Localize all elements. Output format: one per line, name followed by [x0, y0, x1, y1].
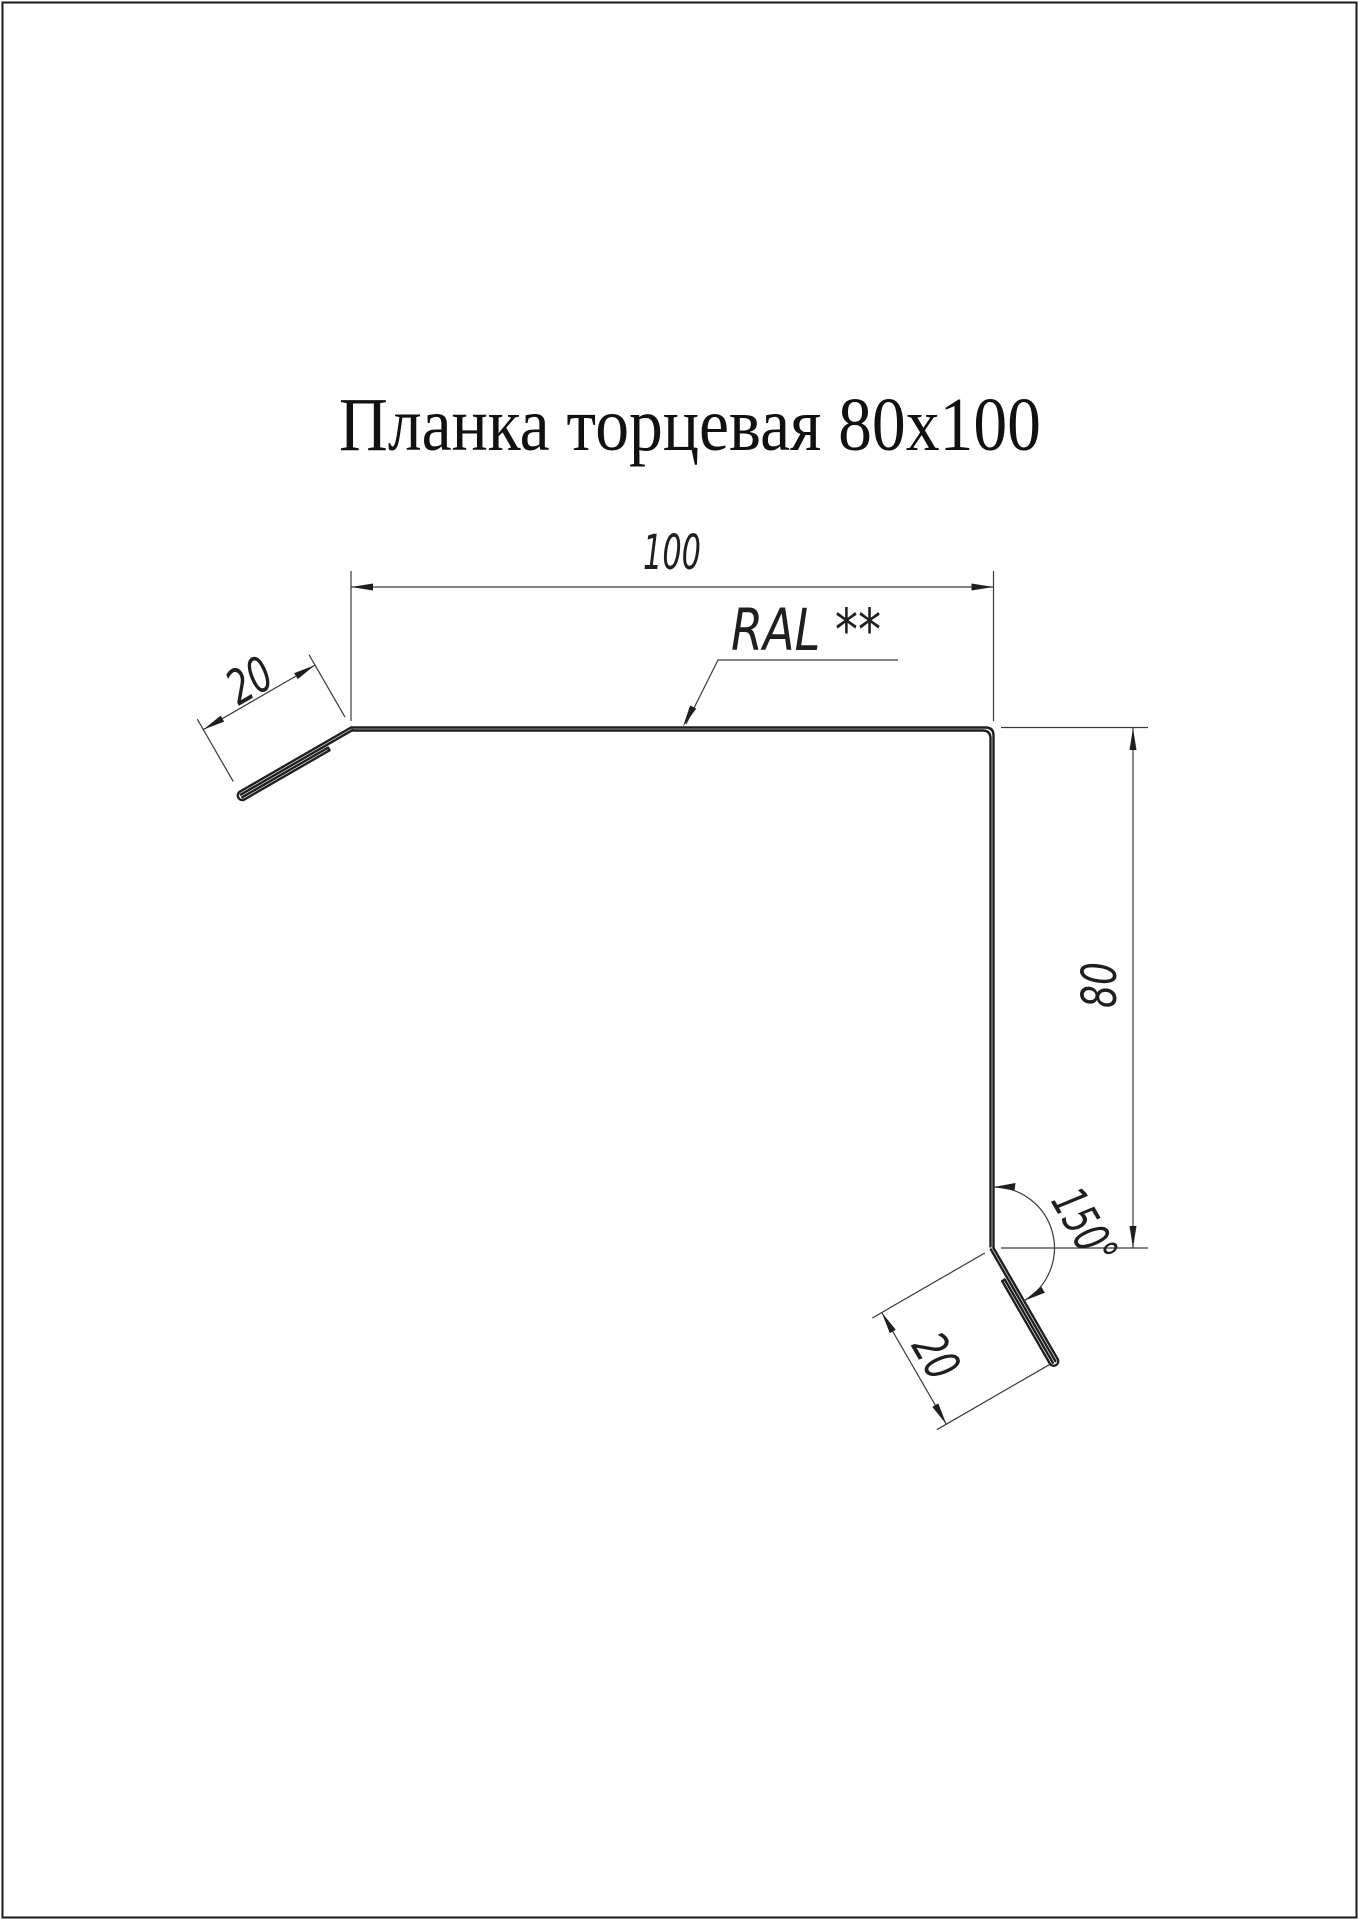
bottom-flange-hem [991, 1248, 1058, 1366]
dim-arrow-lower [932, 1403, 946, 1424]
angle-arrow-bottom [1024, 1287, 1045, 1301]
dim-arrow-right [972, 584, 994, 591]
dim-top-flange: 20 [197, 646, 345, 782]
dim-arrow-lower-left [203, 716, 224, 730]
dim-top-width-value: 100 [643, 525, 701, 581]
drawing-page: Планка торцевая 80x100 100 [0, 0, 1359, 1920]
dim-arrow-up [1130, 728, 1137, 750]
dim-right-height: 80 [1001, 728, 1148, 1249]
leader-arrow [683, 705, 696, 726]
dim-arrow-upper [882, 1313, 896, 1334]
page-title: Планка торцевая 80x100 [339, 383, 1041, 467]
dim-right-height-value: 80 [1072, 962, 1128, 1008]
ral-leader-label: RAL ** [683, 596, 898, 727]
dim-bottom-flange: 20 [872, 1253, 1049, 1430]
dim-bottom-flange-value: 20 [900, 1323, 970, 1389]
dim-top-width: 100 [351, 525, 994, 721]
drawing-canvas: Планка торцевая 80x100 100 [0, 0, 1359, 1920]
page-border [3, 3, 1357, 1918]
profile-outline [351, 728, 994, 1249]
angle-arrow-top [994, 1183, 1016, 1191]
dim-arrow-upper-right [294, 665, 315, 679]
top-flange-hem [238, 728, 353, 801]
dim-arrow-left [351, 584, 373, 591]
ral-label-value: RAL ** [731, 596, 881, 664]
dim-top-flange-value: 20 [217, 646, 283, 716]
dim-arrow-down [1130, 1226, 1137, 1248]
